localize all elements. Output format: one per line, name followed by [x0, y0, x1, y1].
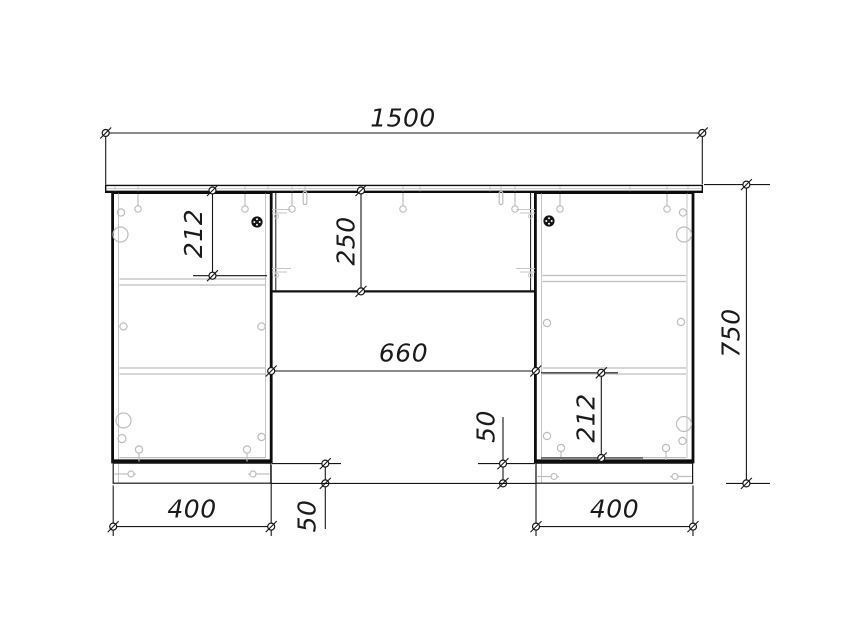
dim-tick-icon — [741, 179, 752, 190]
left-plinth — [113, 463, 271, 483]
bracket-icon — [516, 269, 535, 278]
shelf-pin-icon — [120, 323, 127, 330]
bracket-icon — [516, 210, 535, 219]
shelf-pin-icon — [543, 319, 550, 326]
cam-lock-icon — [251, 216, 262, 227]
dim-tick-icon — [100, 128, 111, 139]
dowel-icon — [303, 192, 307, 205]
shelf-pin-icon — [258, 323, 265, 330]
plinth-screw-icon — [248, 471, 270, 477]
shelf-pin-icon — [258, 433, 265, 440]
dim-tick-icon — [596, 367, 607, 378]
plinth-screw-icon — [670, 474, 692, 480]
screw-icon — [400, 193, 406, 212]
dim-left-top-offset-label: 212 — [179, 209, 208, 258]
dim-left-pedestal-width-label: 400 — [167, 495, 216, 524]
cam-lock-icon — [543, 215, 554, 226]
shelf-pin-icon — [677, 318, 684, 325]
dim-left-top-offset: 212 — [179, 185, 267, 281]
desktop-screw-icons — [135, 192, 670, 213]
dimensions: 1500 750 250 212 660 — [100, 104, 770, 537]
dim-top-panel-height: 250 — [332, 185, 367, 297]
screw-icon — [664, 193, 670, 212]
right-plinth — [536, 463, 693, 483]
right-pedestal-body — [535, 193, 693, 462]
bracket-icon — [272, 210, 291, 219]
right-shelf-lines — [543, 276, 687, 458]
desktop-panel — [105, 185, 703, 212]
dim-left-plinth-height: 50 — [272, 458, 341, 532]
dim-tick-icon — [530, 366, 541, 377]
dim-overall-height: 750 — [704, 179, 770, 489]
dim-tick-icon — [531, 521, 542, 532]
hinge-icon — [113, 209, 128, 242]
drawing-canvas: 1500 750 250 212 660 — [0, 0, 856, 642]
dim-right-bottom-offset: 212 — [541, 367, 643, 463]
bracket-icon — [272, 269, 291, 278]
dim-overall-height-label: 750 — [717, 308, 746, 357]
screw-icon — [242, 193, 248, 212]
dowel-icon — [499, 192, 503, 205]
dim-tick-icon — [108, 521, 119, 532]
dim-tick-icon — [266, 366, 277, 377]
left-shelf-pin-icons — [120, 323, 265, 441]
dim-tick-icon — [356, 185, 367, 196]
screw-icon — [557, 193, 563, 212]
dim-tick-icon — [207, 185, 218, 196]
dim-knee-space-width-label: 660 — [379, 339, 428, 368]
dim-tick-icon — [356, 286, 367, 297]
dim-tick-icon — [266, 521, 277, 532]
dim-tick-icon — [498, 458, 509, 469]
left-shelf-lines — [120, 279, 266, 458]
shelf-pin-icon — [543, 432, 550, 439]
dim-overall-width: 1500 — [100, 104, 708, 185]
dim-tick-icon — [741, 478, 752, 489]
dim-top-panel-height-label: 250 — [332, 216, 361, 265]
screw-icon — [135, 446, 142, 462]
dim-tick-icon — [688, 521, 699, 532]
dim-right-pedestal-width-label: 400 — [590, 495, 639, 524]
dim-right-plinth-height-label: 50 — [472, 410, 501, 443]
hinge-icon — [677, 209, 692, 242]
desk-technical-drawing: 1500 750 250 212 660 — [0, 0, 856, 642]
dim-tick-icon — [697, 128, 708, 139]
right-pedestal — [535, 193, 693, 484]
dim-tick-icon — [320, 458, 331, 469]
screw-icon — [243, 446, 250, 462]
dim-left-plinth-height-label: 50 — [293, 500, 322, 533]
dim-right-bottom-offset-label: 212 — [572, 393, 601, 442]
plinth-screw-icon — [115, 471, 137, 477]
hinge-icon — [677, 417, 692, 445]
dim-overall-width-label: 1500 — [370, 104, 436, 133]
dim-right-pedestal-width: 400 — [531, 465, 699, 536]
plinth-screw-icon — [538, 474, 560, 480]
screw-icon — [135, 193, 141, 212]
middle-top-panel — [271, 193, 536, 291]
dim-knee-space-width: 660 — [266, 339, 542, 377]
dim-right-plinth-height: 50 — [472, 410, 536, 489]
right-shelf-pin-icons — [543, 318, 684, 439]
